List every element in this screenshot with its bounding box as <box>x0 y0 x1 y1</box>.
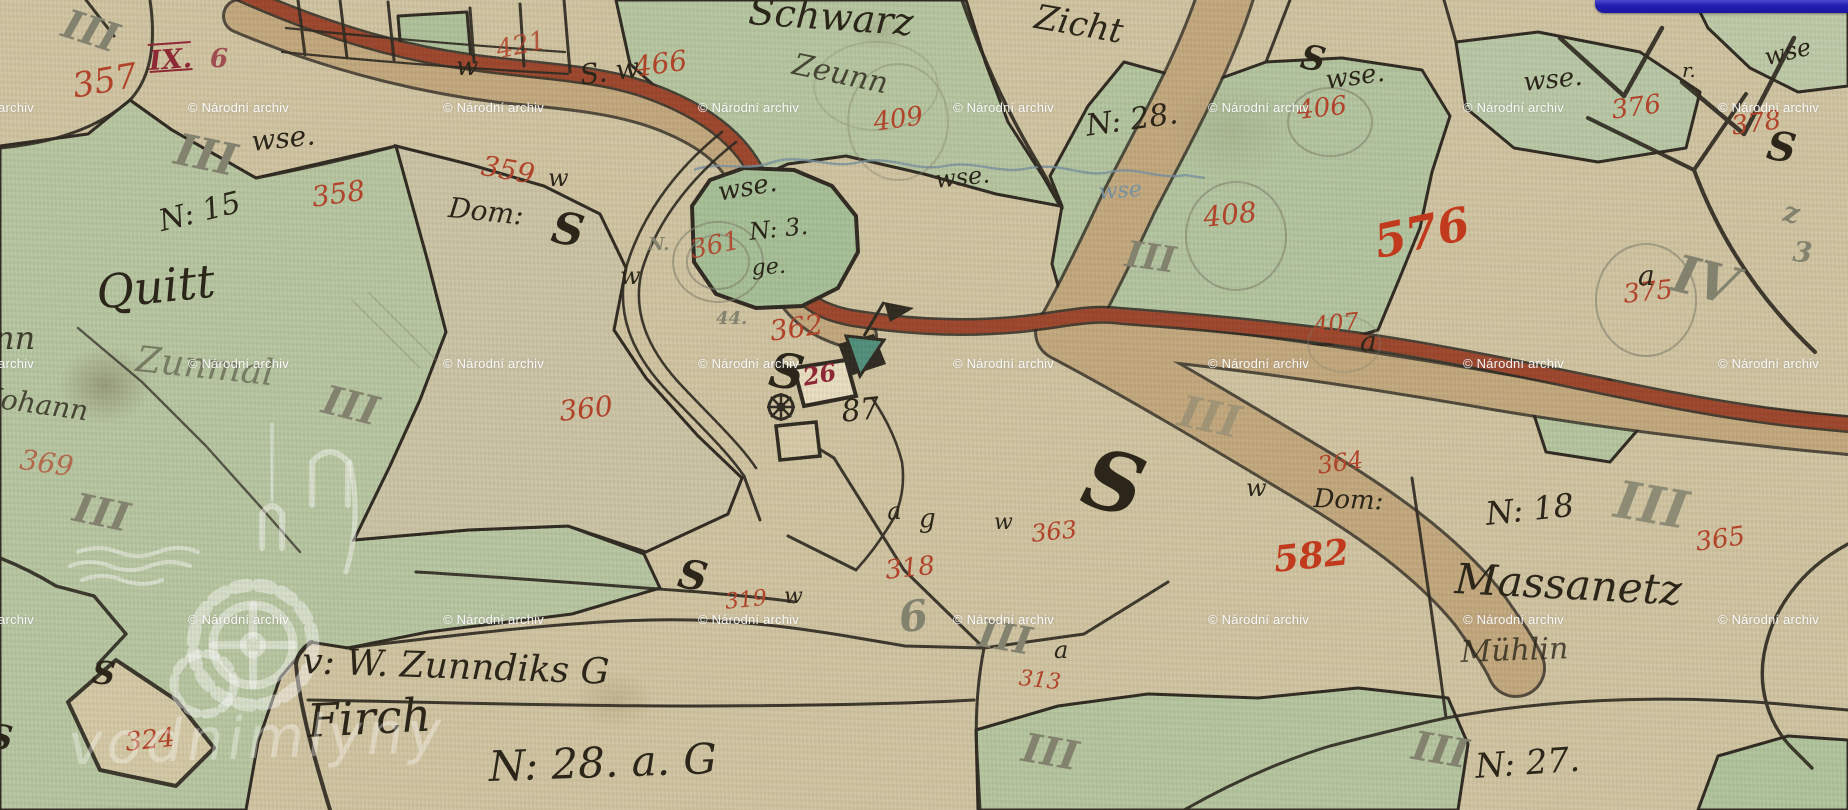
green-region-bottom-right <box>1698 736 1848 810</box>
map-viewport[interactable]: 357IX.6421466358359409406408361362360369… <box>0 0 1848 810</box>
rosette-icon <box>767 393 795 421</box>
green-region-bottom <box>976 688 1468 810</box>
map-artwork <box>0 0 1848 810</box>
logo-watermark-text: vodnimlyny <box>67 697 447 778</box>
browser-ui-fragment[interactable] <box>1595 0 1848 13</box>
pond <box>692 168 858 308</box>
